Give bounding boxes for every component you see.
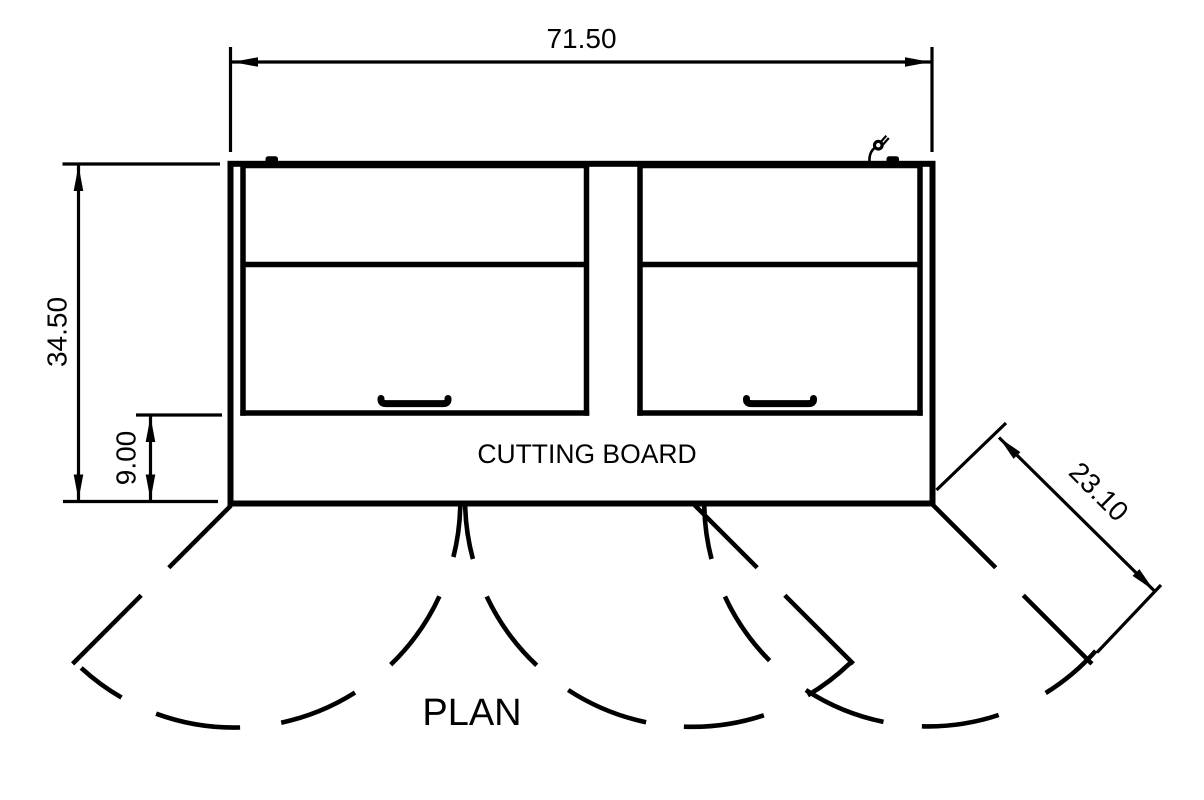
svg-text:CUTTING BOARD: CUTTING BOARD	[477, 439, 696, 469]
svg-text:71.50: 71.50	[546, 23, 616, 54]
svg-text:PLAN: PLAN	[422, 692, 521, 734]
svg-text:34.50: 34.50	[42, 297, 73, 367]
svg-text:9.00: 9.00	[111, 431, 142, 486]
